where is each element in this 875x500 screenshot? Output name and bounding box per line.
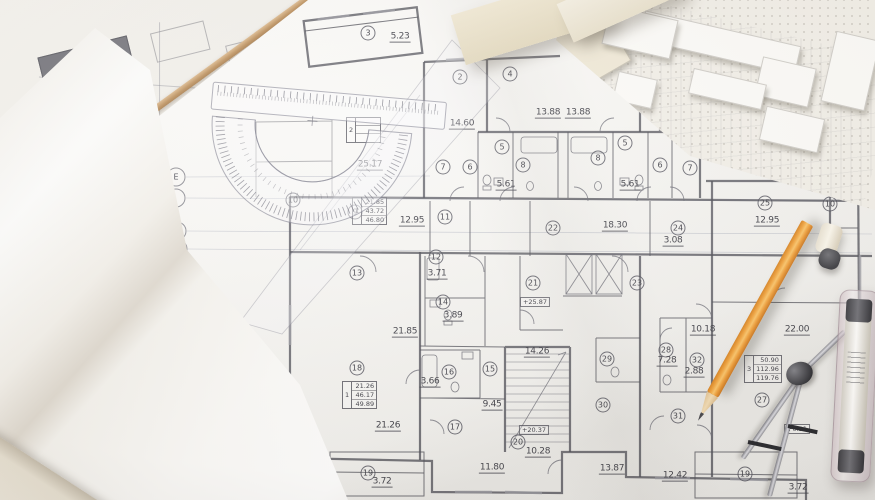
lead-case-label — [846, 352, 866, 385]
lead-case-cap-bottom — [837, 449, 864, 473]
compass-clamp — [788, 424, 818, 434]
protractor-drawing — [196, 76, 450, 268]
lead-case-cap-top — [845, 298, 872, 322]
photo-scene: Architectural blueprint floor plan on a … — [0, 0, 875, 500]
protractor — [196, 76, 450, 268]
